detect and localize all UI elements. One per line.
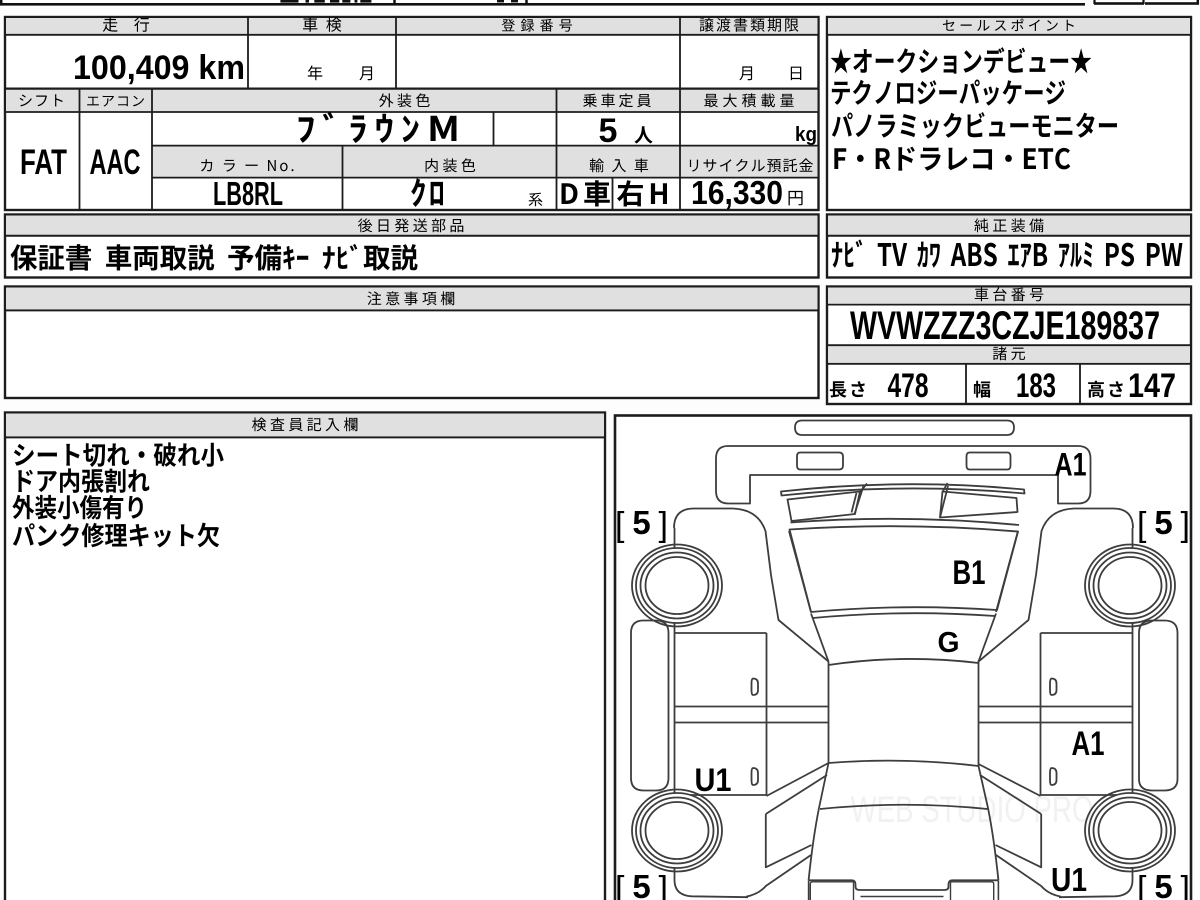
svg-text:5: 5 — [1154, 868, 1172, 900]
svg-text:]: ] — [1181, 870, 1190, 900]
svg-text:]: ] — [659, 870, 668, 900]
svg-text:LB8RL: LB8RL — [213, 175, 283, 212]
svg-text:WVWZZZ3CZJE189837: WVWZZZ3CZJE189837 — [850, 304, 1160, 348]
svg-text:[: [ — [615, 870, 625, 900]
svg-text:5: 5 — [1154, 504, 1172, 541]
svg-text:G: G — [938, 627, 960, 659]
svg-text:100,409 km: 100,409 km — [73, 49, 245, 87]
svg-text:]: ] — [1181, 506, 1190, 544]
svg-text:A1: A1 — [1072, 725, 1105, 763]
svg-text:16,330: 16,330 — [691, 174, 783, 211]
svg-text:[: [ — [1137, 506, 1147, 544]
svg-text:[: [ — [615, 506, 625, 544]
svg-text:5: 5 — [632, 504, 650, 541]
svg-text:147: 147 — [1128, 367, 1176, 405]
svg-text:[: [ — [1137, 870, 1147, 900]
svg-text:5: 5 — [599, 112, 618, 150]
svg-text:U1: U1 — [695, 762, 732, 798]
svg-text:478: 478 — [888, 367, 929, 405]
svg-text:AAC: AAC — [90, 143, 141, 182]
svg-text:]: ] — [659, 506, 668, 544]
svg-text:183: 183 — [1016, 367, 1056, 405]
svg-text:B1: B1 — [953, 554, 986, 592]
svg-text:5: 5 — [632, 868, 650, 900]
svg-text:U1: U1 — [1051, 861, 1087, 898]
svg-text:A1: A1 — [1055, 447, 1087, 483]
svg-text:FAT: FAT — [20, 143, 67, 182]
svg-text:kg: kg — [795, 124, 817, 146]
